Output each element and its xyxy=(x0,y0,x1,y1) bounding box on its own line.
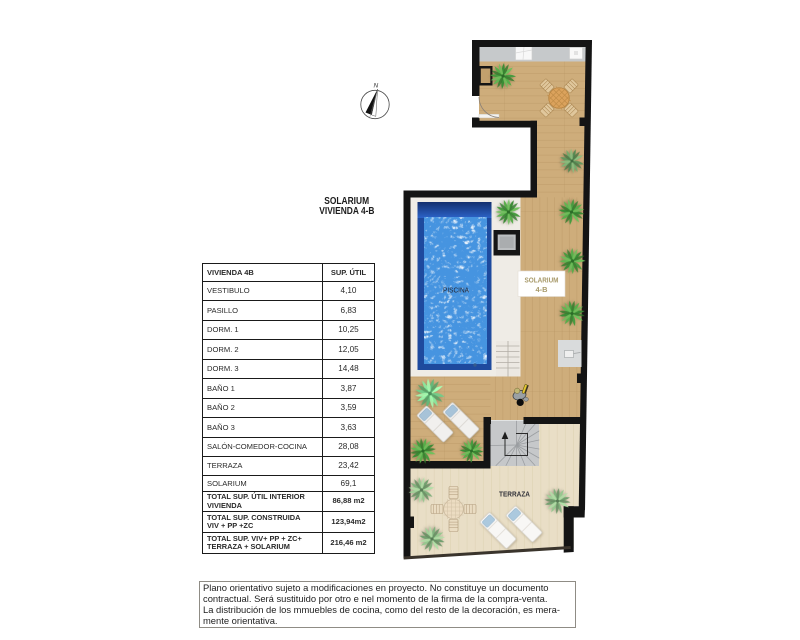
svg-text:TERRAZA: TERRAZA xyxy=(499,490,530,499)
svg-text:4-B: 4-B xyxy=(536,285,548,294)
svg-text:SOLARIUM: SOLARIUM xyxy=(525,276,559,285)
svg-text:N: N xyxy=(374,83,379,90)
svg-text:PISCINA: PISCINA xyxy=(443,288,469,295)
